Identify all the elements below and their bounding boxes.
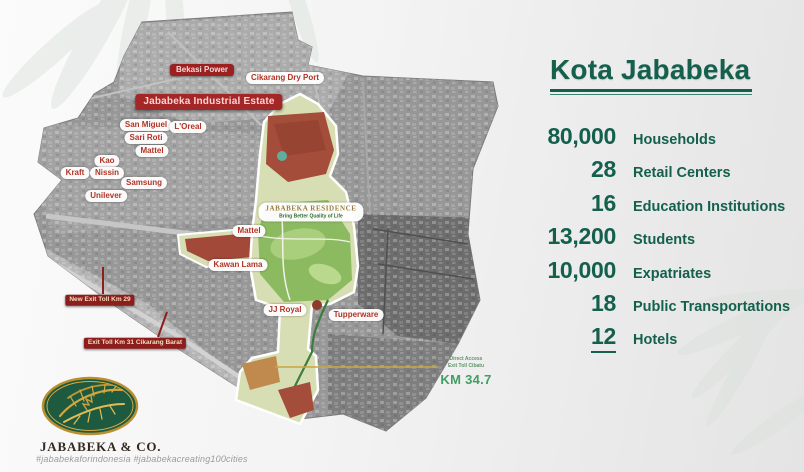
stat-label: Hotels [633, 332, 677, 348]
map-label-kraft: Kraft [61, 167, 90, 179]
map-label-mattel-north: Mattel [135, 145, 168, 157]
map-label-exit-toll-31: Exit Toll Km 31 Cikarang Barat [84, 338, 186, 349]
stat-value: 80,000 [536, 123, 616, 150]
stat-label: Households [633, 132, 716, 148]
map-label-industrial-estate: Jababeka Industrial Estate [135, 94, 282, 110]
title-underline [550, 89, 752, 95]
residence-tagline: Bring Better Quality of Life [265, 213, 356, 219]
residence-badge: JABABEKA RESIDENCE Bring Better Quality … [258, 203, 363, 222]
stat-row-households: 80,000 Households [536, 123, 798, 156]
stat-value: 16 [536, 190, 616, 217]
stat-label: Expatriates [633, 266, 711, 282]
map-label-new-exit-toll: New Exit Toll Km 29 [65, 295, 134, 306]
footer-hashtags: #jababekaforindonesia #jababekacreating1… [36, 454, 248, 464]
toll-access-note: Direct Access Exit Toll Cibatu KM 34.7 [440, 356, 491, 387]
map-label-tupperware: Tupperware [329, 309, 384, 321]
map-label-kao: Kao [94, 155, 119, 167]
map-label-bekasi-power: Bekasi Power [170, 64, 234, 76]
stat-row-education-institutions: 16 Education Institutions [536, 190, 798, 223]
stat-row-retail-centers: 28 Retail Centers [536, 156, 798, 189]
toll-access-caption-line2: Exit Toll Cibatu [440, 363, 491, 370]
stat-row-expatriates: 10,000 Expatriates [536, 257, 798, 290]
toll-access-caption-line1: Direct Access [440, 356, 491, 363]
stat-label: Public Transportations [633, 299, 790, 315]
stat-value: 18 [536, 290, 616, 317]
stat-row-hotels: 12 Hotels [536, 323, 798, 356]
page-title: Kota Jababeka [550, 54, 754, 86]
stat-label: Education Institutions [633, 199, 785, 215]
map-label-unilever: Unilever [85, 190, 127, 202]
stat-label: Students [633, 232, 695, 248]
stat-label: Retail Centers [633, 165, 731, 181]
map-label-samsung: Samsung [121, 177, 167, 189]
map-label-san-miguel: San Miguel [120, 119, 172, 131]
stat-value: 28 [536, 156, 616, 183]
map-label-nissin: Nissin [90, 167, 124, 179]
title-block: Kota Jababeka [550, 54, 754, 95]
map-label-sari-roti: Sari Roti [125, 132, 168, 144]
jababeka-logo-icon [40, 376, 140, 436]
stat-value: 13,200 [536, 223, 616, 250]
stats-list: 80,000 Households 28 Retail Centers 16 E… [536, 123, 798, 357]
map-label-kawan-lama: Kawan Lama [209, 259, 268, 271]
map-label-mattel-central: Mattel [232, 225, 265, 237]
map-label-loreal: L'Oreal [169, 121, 206, 133]
brand-name: JABABEKA & CO. [40, 439, 161, 455]
stat-row-public-transportations: 18 Public Transportations [536, 290, 798, 323]
map-label-jj-royal: JJ Royal [264, 304, 307, 316]
stat-value: 10,000 [536, 257, 616, 284]
stat-value: 12 [536, 323, 616, 353]
map-label-cikarang-dry-port: Cikarang Dry Port [246, 72, 324, 84]
stat-row-students: 13,200 Students [536, 223, 798, 256]
toll-distance: KM 34.7 [440, 372, 491, 387]
residence-name: JABABEKA RESIDENCE [265, 205, 356, 214]
